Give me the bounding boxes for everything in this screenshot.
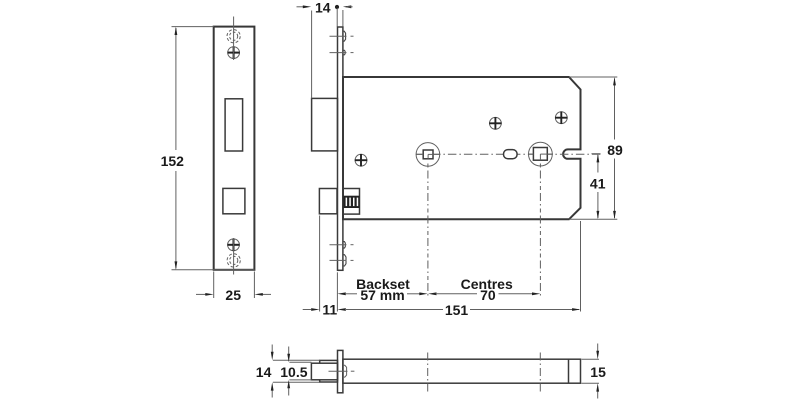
svg-text:57 mm: 57 mm [360,287,404,303]
svg-text:70: 70 [480,287,496,303]
svg-text:41: 41 [590,175,606,191]
svg-text:152: 152 [161,153,185,169]
svg-text:14: 14 [256,364,272,380]
svg-text:15: 15 [590,364,606,380]
svg-text:25: 25 [225,287,241,303]
svg-text:14: 14 [315,0,331,15]
svg-text:89: 89 [607,142,623,158]
svg-text:151: 151 [445,302,469,318]
svg-text:10.5: 10.5 [280,364,307,380]
svg-text:11: 11 [322,301,337,317]
